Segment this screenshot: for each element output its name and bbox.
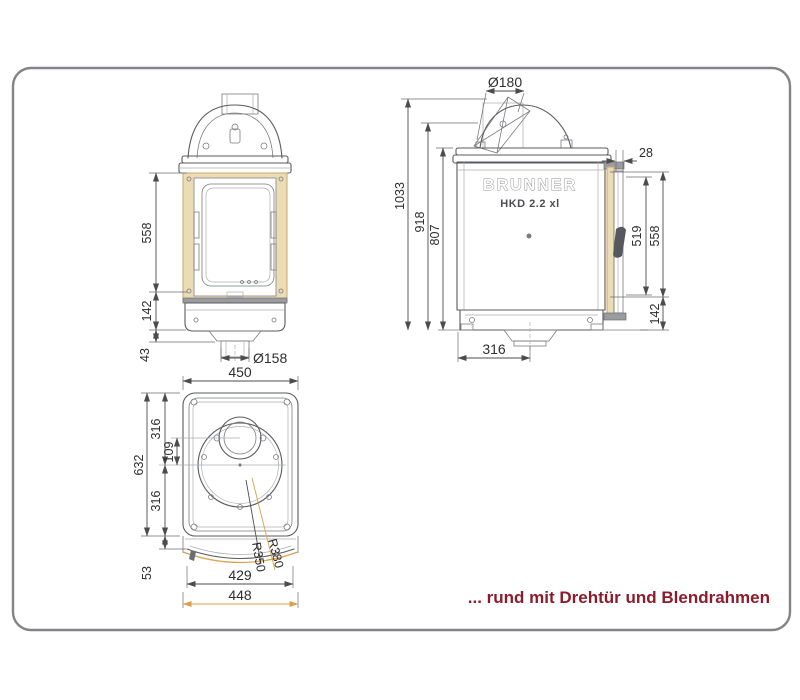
dim-side-total-height: 1033 — [393, 182, 407, 210]
dim-plan-body-width: 450 — [228, 364, 252, 380]
dim-side-base-height: 142 — [648, 304, 662, 325]
dim-plan-rear-half-depth: 316 — [149, 419, 163, 440]
dim-side-flue-diameter: Ø180 — [488, 74, 522, 90]
page-border — [13, 68, 790, 630]
body-pin — [527, 234, 532, 239]
model-label: HKD 2.2 xl — [500, 198, 559, 210]
dim-side-body-height: 807 — [428, 225, 442, 246]
dim-plan-front-width: 429 — [228, 567, 252, 583]
dim-side-flue-center-offset: 316 — [482, 341, 506, 357]
brand-logo: BRUNNER — [483, 177, 577, 194]
dim-side-glass-height: 519 — [630, 226, 644, 247]
front-bottom-band — [183, 298, 287, 303]
dim-front-foot-height: 43 — [138, 348, 152, 362]
caption-text: ... rund mit Drehtür und Blendrahmen — [468, 588, 770, 607]
dim-plan-body-depth: 632 — [132, 455, 146, 476]
dim-side-connector-height: 918 — [413, 212, 427, 233]
dim-side-frame-offset: 28 — [639, 146, 653, 160]
dim-front-base-height: 142 — [140, 301, 154, 322]
dim-plan-front-half-depth: 316 — [149, 491, 163, 512]
dim-plan-frame-width: 448 — [228, 587, 252, 603]
dim-side-door-height: 558 — [648, 226, 662, 247]
dim-plan-flue-offset: 109 — [162, 442, 176, 463]
dim-plan-bow-depth: 53 — [140, 566, 154, 580]
dim-front-glass-height: 558 — [140, 223, 154, 244]
side-blendrahmen-strip — [607, 167, 614, 317]
drawing-canvas: 558 142 43 Ø158 450 — [0, 0, 800, 700]
dim-front-flue-diameter: Ø158 — [253, 350, 287, 366]
technical-drawing-page: 558 142 43 Ø158 450 — [0, 0, 800, 700]
